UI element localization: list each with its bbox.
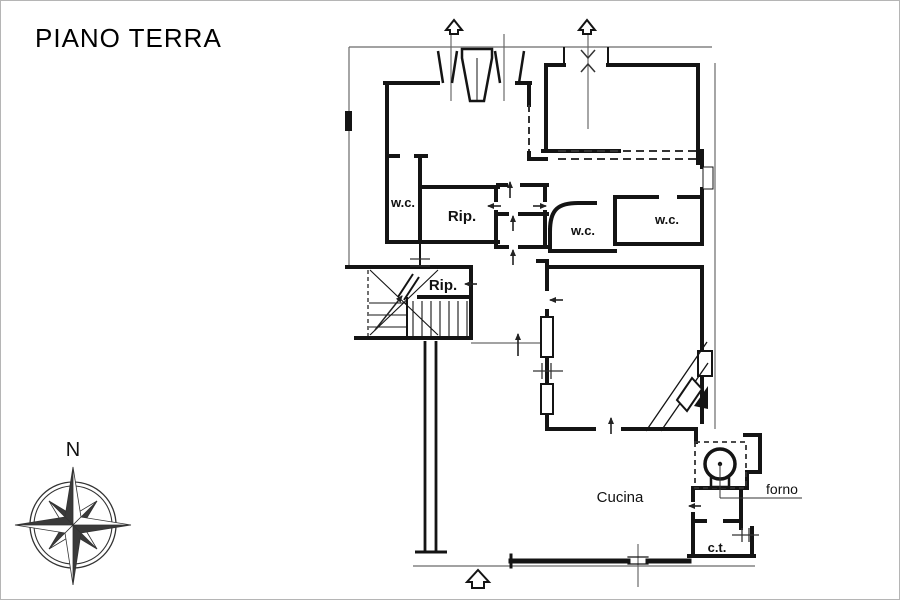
north-label: N bbox=[66, 439, 80, 461]
room-label-wc-3: w.c. bbox=[654, 212, 679, 227]
bottom-wall bbox=[511, 555, 689, 567]
room-label-rip-1: Rip. bbox=[448, 208, 476, 225]
entrance-arrow-top-right bbox=[579, 20, 595, 34]
room-label-boiler: c.t. bbox=[708, 540, 727, 555]
interior-walls bbox=[385, 65, 760, 556]
room-label-wc-2: w.c. bbox=[570, 223, 595, 238]
entrance-arrow-bottom bbox=[467, 570, 489, 588]
compass-rose: N bbox=[15, 439, 131, 585]
floor-plan-page: PIANO TERRA bbox=[0, 0, 900, 600]
splayed-openings bbox=[438, 47, 608, 101]
entrance-arrows bbox=[446, 20, 595, 588]
floor-plan-drawing: w.c. Rip. w.c. w.c. Rip. Cucina forno c.… bbox=[1, 1, 899, 599]
room-label-wc-1: w.c. bbox=[390, 195, 415, 210]
exterior-thin-lines bbox=[349, 34, 755, 587]
entrance-arrow-top-left bbox=[446, 20, 462, 34]
wall-tick bbox=[345, 111, 352, 131]
room-label-kitchen: Cucina bbox=[597, 489, 644, 506]
room-label-oven: forno bbox=[766, 481, 798, 497]
room-label-rip-2: Rip. bbox=[429, 277, 457, 294]
corridor-wall bbox=[415, 341, 447, 552]
